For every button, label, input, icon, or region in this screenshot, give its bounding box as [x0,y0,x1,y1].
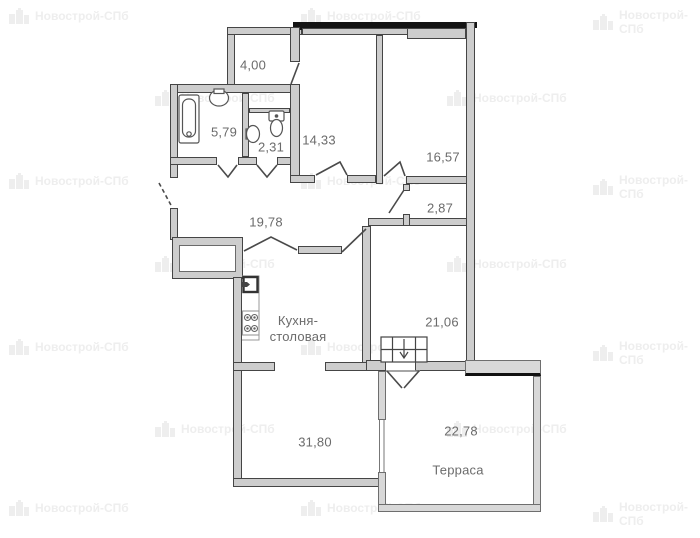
room-label-living: 21,06 [425,315,459,330]
kitchen-name-line1: Кухня- [278,313,318,328]
terrace-door-leaf-right [404,371,419,388]
room-label-bedroom2: 16,57 [426,150,460,165]
room-label-terrace-area: 22,78 [444,424,478,439]
room-label-terrace-name: Терраса [432,463,483,478]
bathroom-sink-icon [210,89,229,106]
room-label-bedroom1: 14,33 [302,133,336,148]
bedroom1-door [316,162,347,175]
kitchen-sink-icon [242,277,258,292]
kitchen-name-line2: столовая [270,329,327,344]
living-door [342,229,366,252]
room-label-hallway: 19,78 [249,215,283,230]
fixtures-layer [0,0,700,538]
wc-door [257,165,277,177]
room-label-wc: 2,31 [258,140,284,155]
room-label-bathroom: 5,79 [211,125,237,140]
room-label-kitchen-name: Кухня- столовая [270,313,327,345]
bedroom2-door [384,162,405,176]
toilet-icon [269,111,284,137]
staircase-icon [381,337,427,362]
terrace-door-leaf-left [387,371,402,388]
room-label-storage: 2,87 [427,201,453,216]
stove-icon [243,311,260,335]
balcony-door [291,63,299,84]
bathroom-door [218,165,237,177]
bathtub-icon [179,95,199,143]
room-label-balcony: 4,00 [240,58,266,73]
terrace-window [378,420,386,472]
storage-door [389,190,404,213]
entrance-door [159,183,172,207]
room-label-kitchen-area: 31,80 [298,435,332,450]
floor-plan: Новострой-СПбНовострой-СПбНовострой-СПбН… [0,0,700,538]
kitchen-door [244,237,297,251]
